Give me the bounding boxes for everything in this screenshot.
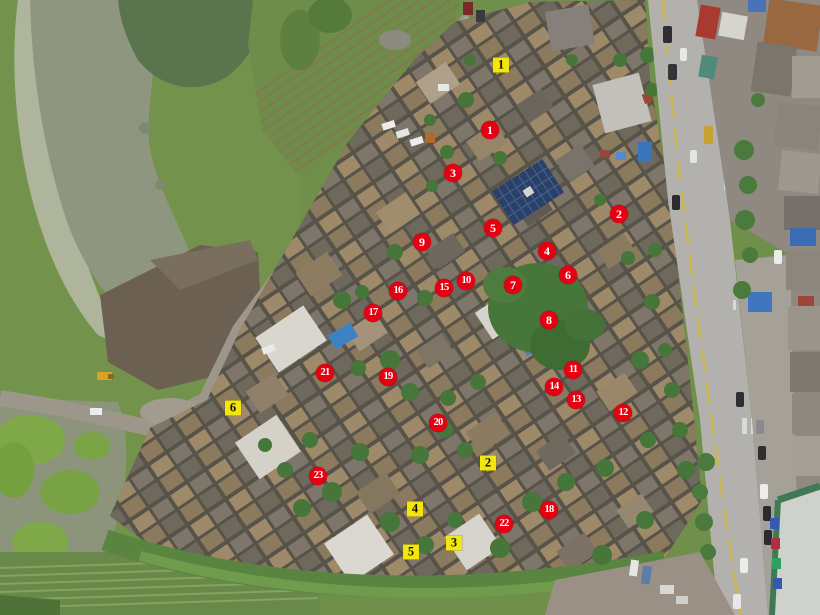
red-marker-21: 21 xyxy=(316,364,334,382)
red-marker-11: 11 xyxy=(564,361,582,379)
red-marker-16: 16 xyxy=(389,282,407,300)
yellow-marker-2: 2 xyxy=(480,456,496,471)
red-marker-17: 17 xyxy=(364,304,382,322)
red-marker-3: 3 xyxy=(444,164,462,182)
marker-layer: 1234567891011121314151617181920212223123… xyxy=(0,0,820,615)
red-marker-13: 13 xyxy=(567,391,585,409)
red-marker-6: 6 xyxy=(559,266,577,284)
red-marker-22: 22 xyxy=(495,515,513,533)
yellow-marker-3: 3 xyxy=(446,536,462,551)
red-marker-15: 15 xyxy=(435,279,453,297)
red-marker-2: 2 xyxy=(610,205,628,223)
red-marker-4: 4 xyxy=(538,242,556,260)
red-marker-10: 10 xyxy=(457,272,475,290)
red-marker-8: 8 xyxy=(540,311,558,329)
yellow-marker-1: 1 xyxy=(493,58,509,73)
red-marker-9: 9 xyxy=(413,233,431,251)
red-marker-20: 20 xyxy=(429,414,447,432)
yellow-marker-5: 5 xyxy=(403,545,419,560)
yellow-marker-4: 4 xyxy=(407,502,423,517)
red-marker-7: 7 xyxy=(504,276,522,294)
aerial-survey-image: 1234567891011121314151617181920212223123… xyxy=(0,0,820,615)
red-marker-23: 23 xyxy=(309,467,327,485)
red-marker-14: 14 xyxy=(545,378,563,396)
red-marker-12: 12 xyxy=(614,404,632,422)
red-marker-5: 5 xyxy=(484,219,502,237)
red-marker-18: 18 xyxy=(540,501,558,519)
yellow-marker-6: 6 xyxy=(225,401,241,416)
red-marker-1: 1 xyxy=(481,121,499,139)
red-marker-19: 19 xyxy=(379,368,397,386)
